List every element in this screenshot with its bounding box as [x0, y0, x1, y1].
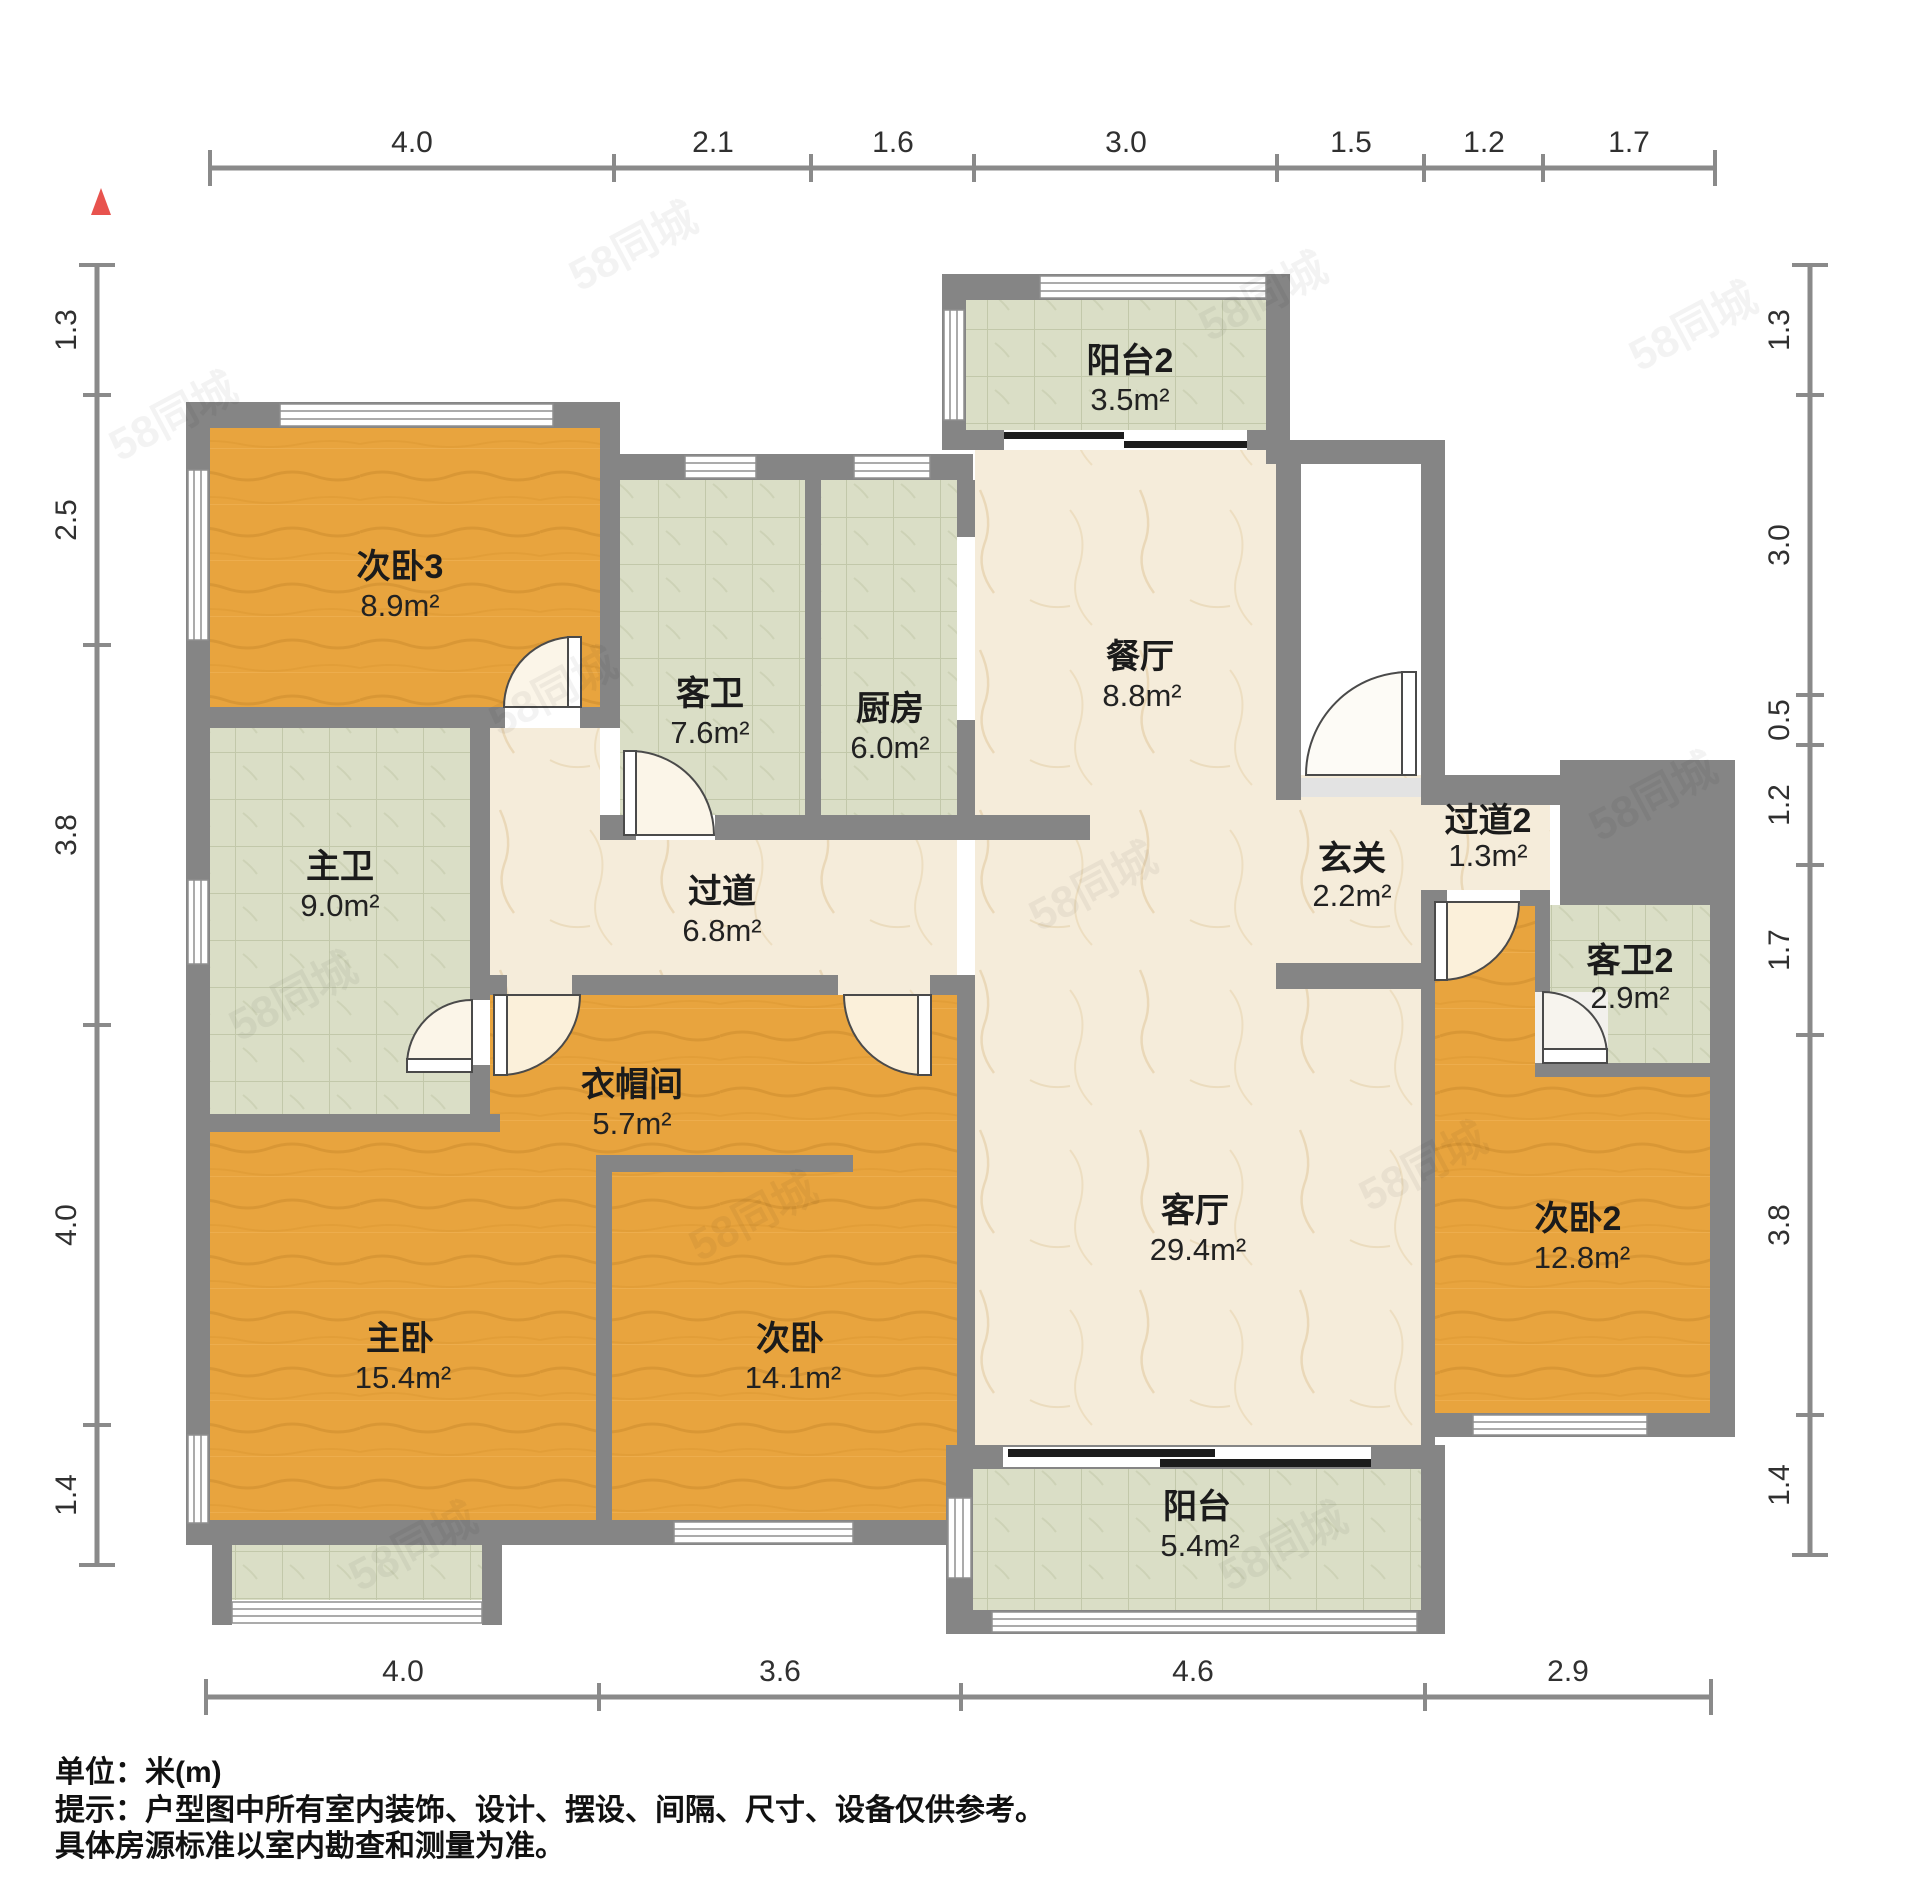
window-balcony-bottom	[992, 1612, 1417, 1632]
window-bay-bottom	[232, 1602, 482, 1623]
svg-text:14.1m²: 14.1m²	[745, 1360, 841, 1395]
svg-text:1.2: 1.2	[1463, 126, 1505, 159]
svg-text:客厅: 客厅	[1161, 1191, 1229, 1230]
svg-text:次卧: 次卧	[756, 1320, 824, 1358]
window-master-bedroom-left	[188, 1435, 208, 1523]
svg-text:3.8: 3.8	[1763, 1204, 1796, 1246]
svg-text:15.4m²: 15.4m²	[355, 1360, 451, 1395]
svg-text:4.0: 4.0	[391, 126, 433, 159]
room-label-foyer: 玄关2.2m²	[1312, 840, 1391, 913]
svg-text:餐厅: 餐厅	[1106, 638, 1174, 676]
svg-text:1.6: 1.6	[872, 126, 914, 159]
window-bedroom3-left	[188, 470, 208, 640]
window-balcony2-left	[944, 310, 964, 420]
svg-text:2.9: 2.9	[1547, 1655, 1589, 1688]
room-label-guest-bath: 客卫7.6m²	[670, 674, 749, 750]
room-label-balcony2: 阳台23.5m²	[1087, 342, 1174, 417]
footnotes: 单位：米(m) 提示：户型图中所有室内装饰、设计、摆设、间隔、尺寸、设备仅供参考…	[55, 1755, 1045, 1863]
svg-text:次卧3: 次卧3	[357, 548, 444, 586]
svg-text:8.9m²: 8.9m²	[360, 588, 439, 623]
room-label-closet: 衣帽间5.7m²	[581, 1066, 683, 1141]
svg-text:1.3: 1.3	[50, 309, 83, 351]
window-guest-bath-top	[685, 456, 756, 478]
window-bedroom2-bottom	[1473, 1415, 1647, 1435]
svg-text:29.4m²: 29.4m²	[1150, 1232, 1246, 1267]
svg-text:1.3m²: 1.3m²	[1448, 838, 1527, 873]
room-label-dining: 餐厅8.8m²	[1102, 638, 1181, 713]
svg-text:厨房: 厨房	[856, 690, 924, 728]
svg-text:4.0: 4.0	[382, 1655, 424, 1688]
room-label-bedroom3: 次卧38.9m²	[357, 548, 444, 623]
svg-text:58同城: 58同城	[1621, 273, 1765, 381]
dimension-right: 1.3 3.0 0.5 1.2 1.7 3.8 1.4	[1763, 265, 1828, 1555]
svg-text:0.5: 0.5	[1763, 699, 1796, 741]
svg-text:过道: 过道	[688, 873, 756, 911]
svg-text:客卫2: 客卫2	[1587, 941, 1674, 980]
svg-text:2.5: 2.5	[50, 499, 83, 541]
svg-text:3.8: 3.8	[50, 814, 83, 856]
svg-text:2.2m²: 2.2m²	[1312, 878, 1391, 913]
svg-text:4.0: 4.0	[50, 1204, 83, 1246]
dimension-top: 4.0 2.1 1.6 3.0 1.5 1.2 1.7	[210, 126, 1715, 186]
svg-text:3.0: 3.0	[1105, 126, 1147, 159]
unit-note: 单位：米(m)	[55, 1755, 222, 1789]
svg-text:1.7: 1.7	[1763, 929, 1796, 971]
room-label-kitchen: 厨房6.0m²	[850, 690, 929, 765]
svg-text:衣帽间: 衣帽间	[581, 1066, 683, 1104]
room-label-hallway2: 过道21.3m²	[1445, 802, 1532, 873]
dimension-left: 1.3 2.5 3.8 4.0 1.4	[50, 265, 115, 1565]
svg-text:阳台2: 阳台2	[1087, 342, 1174, 380]
floorplan-canvas: 次卧38.9m² 客卫7.6m² 厨房6.0m² 餐厅8.8m² 阳台23.5m…	[0, 0, 1920, 1883]
svg-text:3.0: 3.0	[1763, 524, 1796, 566]
room-label-bedroom2: 次卧212.8m²	[1534, 1200, 1630, 1275]
floorplan-page: 次卧38.9m² 客卫7.6m² 厨房6.0m² 餐厅8.8m² 阳台23.5m…	[0, 0, 1920, 1883]
svg-text:6.8m²: 6.8m²	[682, 913, 761, 948]
svg-text:主卫: 主卫	[306, 848, 374, 886]
svg-text:次卧2: 次卧2	[1535, 1200, 1622, 1238]
svg-text:58同城: 58同城	[561, 193, 705, 301]
window-kitchen-top	[854, 456, 930, 478]
svg-text:1.5: 1.5	[1330, 126, 1372, 159]
svg-text:主卧: 主卧	[366, 1320, 434, 1358]
svg-text:过道2: 过道2	[1445, 802, 1532, 840]
window-bedroom3-top	[280, 404, 553, 426]
window-bedroom-bottom	[674, 1522, 853, 1543]
svg-text:4.6: 4.6	[1172, 1655, 1214, 1688]
room-label-guest-bath2: 客卫22.9m²	[1587, 941, 1674, 1015]
svg-text:7.6m²: 7.6m²	[670, 715, 749, 750]
north-arrow-icon	[91, 188, 111, 215]
svg-text:3.5m²: 3.5m²	[1090, 382, 1169, 417]
svg-text:2.1: 2.1	[692, 126, 734, 159]
svg-text:6.0m²: 6.0m²	[850, 730, 929, 765]
svg-text:12.8m²: 12.8m²	[1534, 1240, 1630, 1275]
room-label-hallway: 过道6.8m²	[682, 873, 761, 948]
svg-text:1.2: 1.2	[1763, 784, 1796, 826]
disclaimer-line2: 具体房源标准以室内勘查和测量为准。	[55, 1829, 565, 1863]
dimension-bottom: 4.0 3.6 4.6 2.9	[206, 1655, 1711, 1715]
svg-text:客卫: 客卫	[676, 674, 744, 713]
svg-text:2.9m²: 2.9m²	[1590, 980, 1669, 1015]
svg-text:1.4: 1.4	[50, 1474, 83, 1516]
sliding-door-balcony	[1003, 1447, 1371, 1467]
svg-text:8.8m²: 8.8m²	[1102, 678, 1181, 713]
svg-text:5.7m²: 5.7m²	[592, 1106, 671, 1141]
svg-text:9.0m²: 9.0m²	[300, 888, 379, 923]
svg-text:1.3: 1.3	[1763, 309, 1796, 351]
svg-text:1.7: 1.7	[1608, 126, 1650, 159]
svg-text:1.4: 1.4	[1763, 1464, 1796, 1506]
svg-text:玄关: 玄关	[1318, 840, 1386, 878]
sliding-door-balcony2	[1004, 430, 1247, 450]
window-balcony-left	[948, 1498, 971, 1578]
disclaimer-line1: 提示：户型图中所有室内装饰、设计、摆设、间隔、尺寸、设备仅供参考。	[55, 1793, 1045, 1827]
svg-text:3.6: 3.6	[759, 1655, 801, 1688]
room-label-master-bath: 主卫9.0m²	[300, 848, 379, 923]
window-master-bath-left	[188, 880, 208, 964]
svg-text:阳台: 阳台	[1163, 1488, 1231, 1526]
